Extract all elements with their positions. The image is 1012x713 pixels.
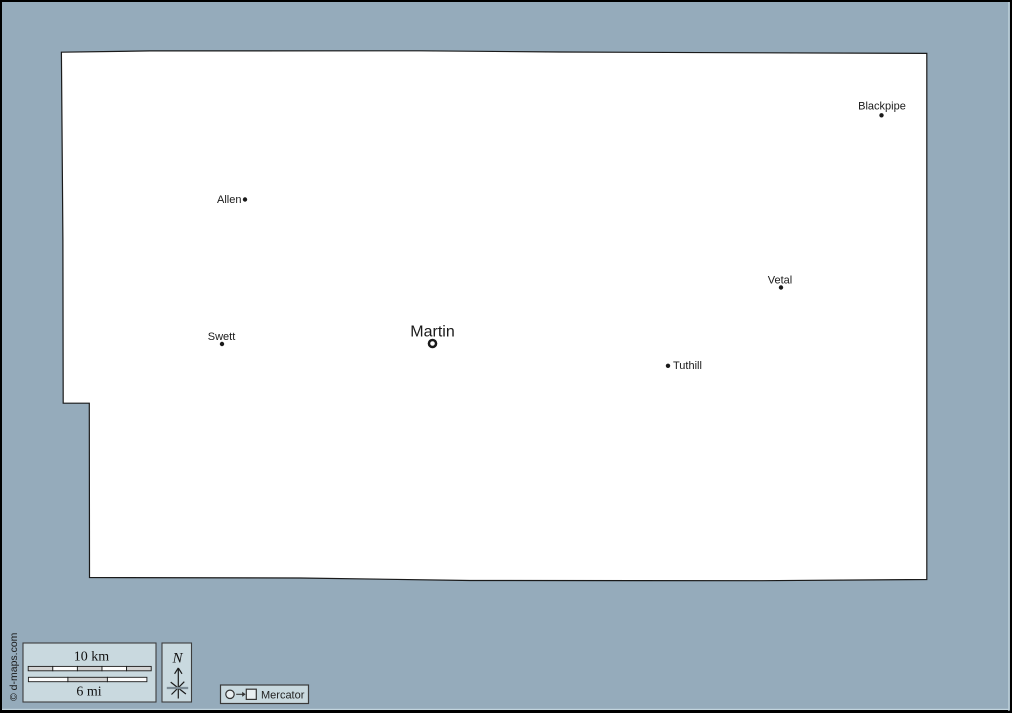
svg-text:Tuthill: Tuthill — [673, 360, 702, 372]
svg-text:10 km: 10 km — [74, 650, 110, 665]
svg-text:Martin: Martin — [410, 323, 454, 340]
svg-text:Blackpipe: Blackpipe — [858, 101, 906, 113]
svg-text:Allen: Allen — [217, 194, 241, 206]
svg-text:6 mi: 6 mi — [76, 685, 101, 700]
svg-text:Vetal: Vetal — [768, 274, 792, 286]
svg-text:N: N — [171, 650, 183, 666]
svg-text:© d-maps.com: © d-maps.com — [8, 632, 20, 701]
svg-text:Mercator: Mercator — [261, 689, 305, 701]
svg-text:Swett: Swett — [208, 331, 236, 343]
